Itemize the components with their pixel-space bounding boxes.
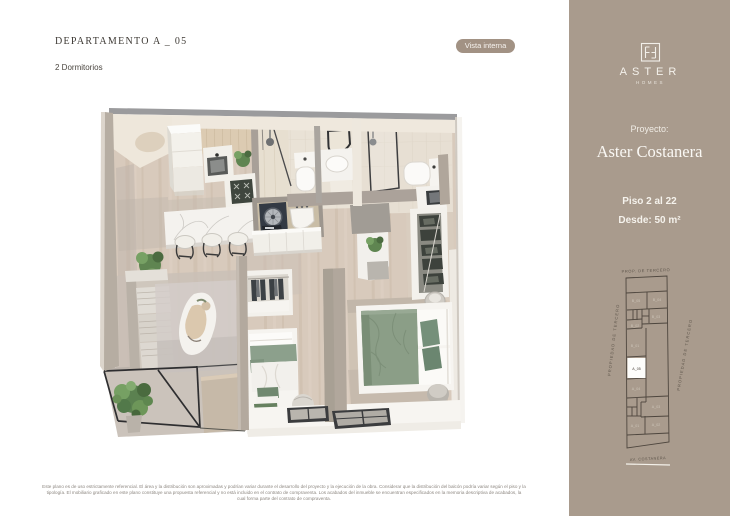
svg-text:A_03: A_03 xyxy=(652,405,660,409)
svg-text:PROPIEDAD DE TERCERO: PROPIEDAD DE TERCERO xyxy=(607,303,621,376)
svg-text:HOMES: HOMES xyxy=(636,80,665,85)
svg-text:B_02: B_02 xyxy=(631,324,639,328)
svg-text:A_01: A_01 xyxy=(631,424,639,428)
svg-text:PROP. DE TERCERO: PROP. DE TERCERO xyxy=(621,267,670,274)
svg-text:PROPIEDAD DE TERCERO: PROPIEDAD DE TERCERO xyxy=(676,318,694,391)
svg-text:AV. COSTANERA: AV. COSTANERA xyxy=(630,456,667,462)
svg-text:A_04: A_04 xyxy=(632,387,640,391)
svg-text:B_05: B_05 xyxy=(632,299,640,303)
svg-text:B_04: B_04 xyxy=(653,298,661,302)
svg-text:ASTER: ASTER xyxy=(620,66,682,78)
svg-text:A_02: A_02 xyxy=(652,423,660,427)
svg-text:B_03: B_03 xyxy=(652,315,660,319)
svg-text:B_01: B_01 xyxy=(631,344,639,348)
svg-text:A_05: A_05 xyxy=(632,367,640,371)
